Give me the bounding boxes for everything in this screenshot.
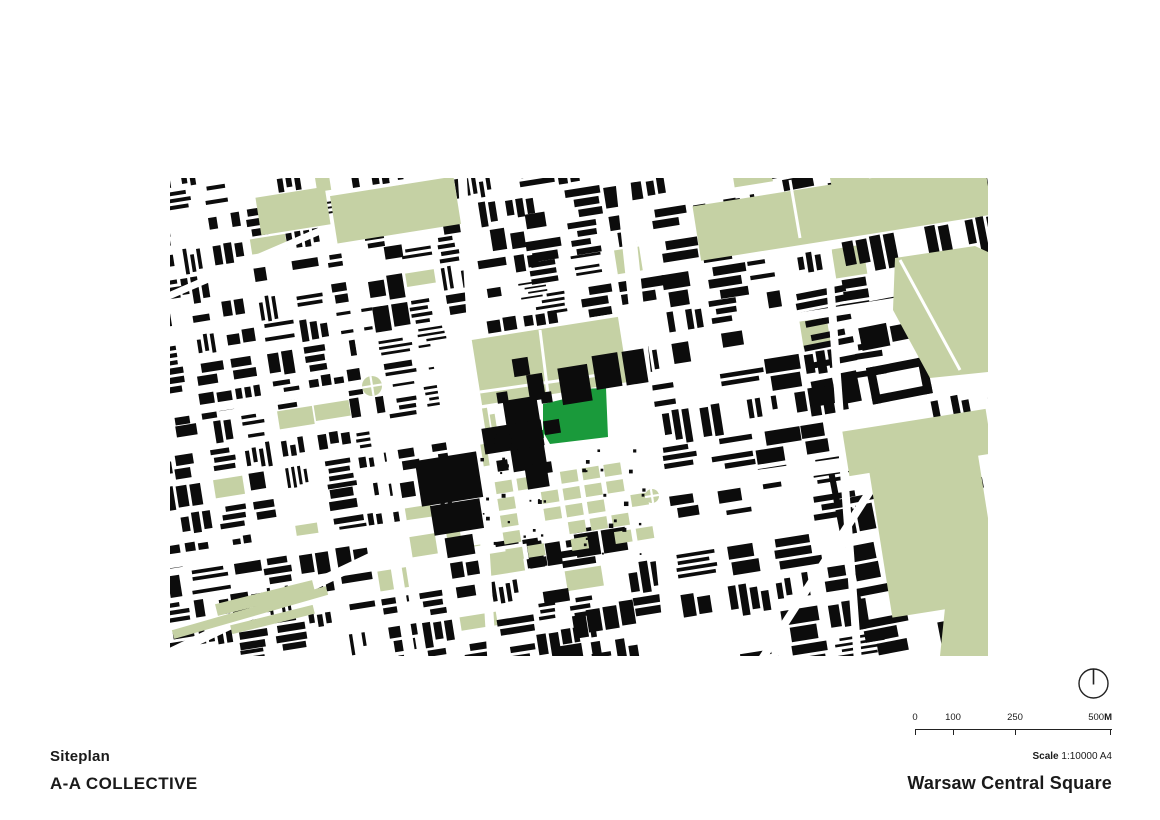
title-block: Siteplan A-A COLLECTIVE: [50, 748, 198, 794]
scale-tick-label: 250: [1007, 712, 1023, 723]
drawing-title: Siteplan: [50, 748, 198, 765]
scale-tick-label: 0: [912, 712, 917, 723]
scale-tick-label: 500M: [1088, 712, 1112, 723]
scale-tick-label: 100: [945, 712, 961, 723]
drawing-sheet: Siteplan A-A COLLECTIVE 0 100 250 500M S…: [0, 0, 1160, 820]
scale-bar-tick: [1110, 729, 1111, 735]
scale-note: Scale 1:10000 A4: [1032, 751, 1112, 762]
scale-bar-line: [915, 729, 1112, 730]
firm-name: A-A COLLECTIVE: [50, 774, 198, 794]
scale-bar-tick: [915, 729, 916, 735]
scale-bar: 0 100 250 500M: [915, 712, 1112, 738]
scale-value: 1:10000 A4: [1061, 751, 1112, 762]
scale-unit: M: [1104, 712, 1112, 723]
scale-bar-tick: [1015, 729, 1016, 735]
siteplan-map: [170, 178, 988, 656]
scale-bar-tick: [953, 729, 954, 735]
scale-label: Scale: [1032, 751, 1058, 762]
project-title: Warsaw Central Square: [907, 773, 1112, 794]
north-arrow-icon: [1075, 665, 1112, 702]
